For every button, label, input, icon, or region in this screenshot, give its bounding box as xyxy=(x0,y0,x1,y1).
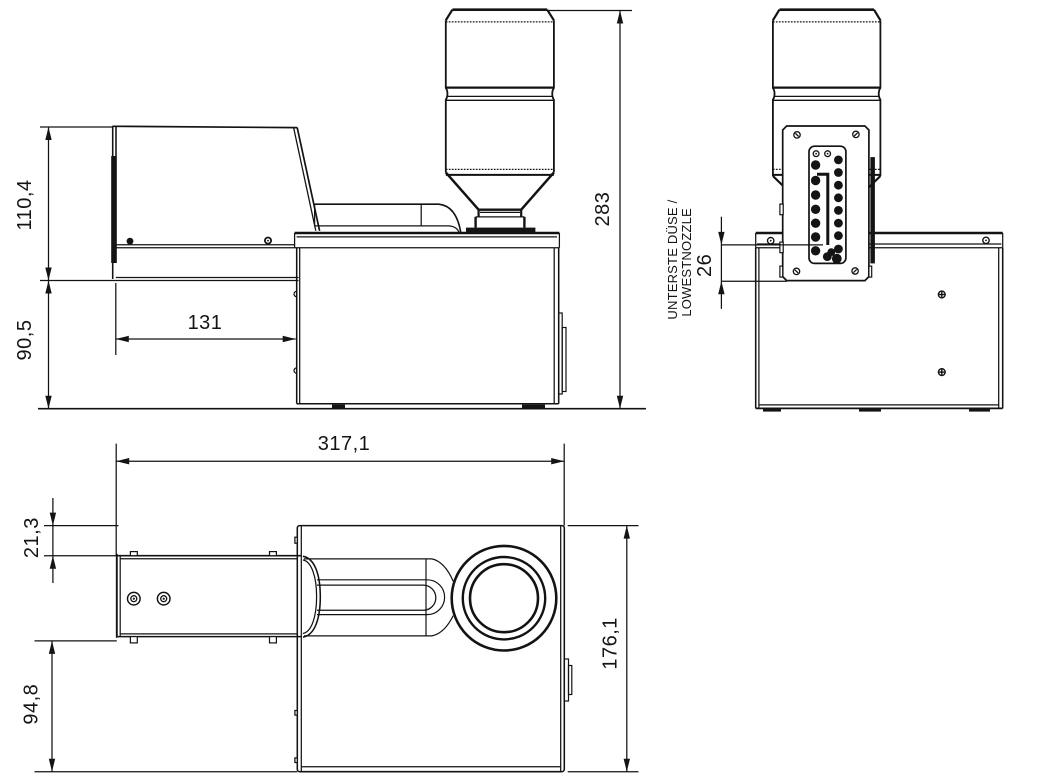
svg-text:26: 26 xyxy=(694,254,716,277)
svg-text:110,4: 110,4 xyxy=(14,179,36,230)
svg-text:LOWESTNOZZLE: LOWESTNOZZLE xyxy=(679,208,694,317)
svg-text:131: 131 xyxy=(188,312,223,334)
svg-text:UNTERSTE DÜSE /: UNTERSTE DÜSE / xyxy=(665,199,680,319)
svg-text:317,1: 317,1 xyxy=(318,433,371,455)
svg-text:90,5: 90,5 xyxy=(14,320,36,361)
svg-text:21,3: 21,3 xyxy=(21,517,43,558)
svg-text:283: 283 xyxy=(592,192,614,227)
svg-text:94,8: 94,8 xyxy=(21,684,43,725)
svg-text:176,1: 176,1 xyxy=(600,617,622,670)
